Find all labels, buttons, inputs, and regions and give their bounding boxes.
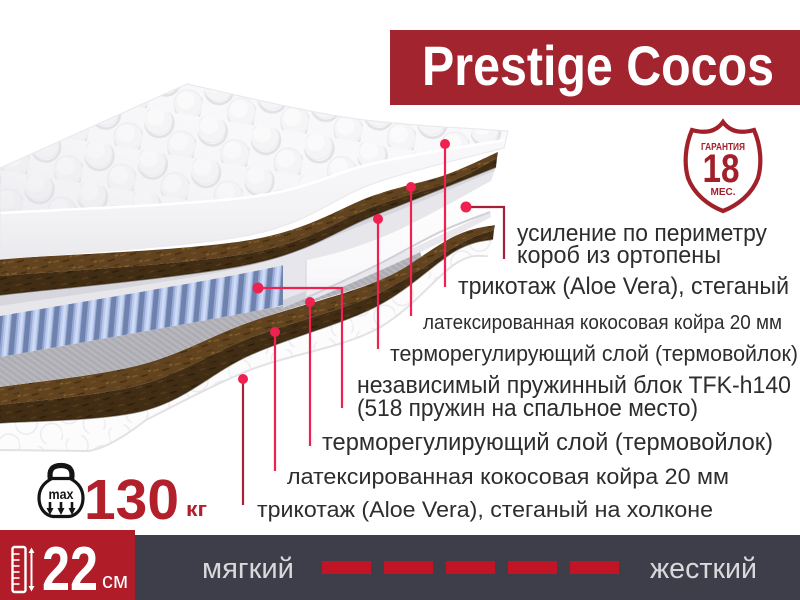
- svg-text:мягкий: мягкий: [202, 553, 294, 585]
- svg-text:трикотаж (Aloe Vera), стеганый: трикотаж (Aloe Vera), стеганый: [458, 273, 789, 300]
- svg-text:жесткий: жесткий: [650, 553, 757, 585]
- svg-text:МЕС.: МЕС.: [711, 186, 736, 198]
- svg-text:130: 130: [84, 468, 179, 532]
- svg-text:латексированная кокосовая койр: латексированная кокосовая койра 20 мм: [287, 464, 729, 489]
- svg-text:трикотаж (Aloe Vera), стеганый: трикотаж (Aloe Vera), стеганый на холкон…: [257, 497, 713, 522]
- svg-text:max: max: [49, 486, 74, 502]
- svg-text:см: см: [102, 568, 128, 593]
- svg-text:(518 пружин на спальное место): (518 пружин на спальное место): [357, 395, 698, 422]
- svg-text:терморегулирующий слой (термов: терморегулирующий слой (термовойлок): [322, 429, 773, 456]
- svg-text:терморегулирующий слой (термов: терморегулирующий слой (термовойлок): [390, 341, 798, 366]
- svg-text:короб из ортопены: короб из ортопены: [517, 242, 721, 269]
- svg-text:латексированная кокосовая койр: латексированная кокосовая койра 20 мм: [423, 312, 782, 334]
- svg-text:кг: кг: [186, 499, 207, 521]
- svg-text:18: 18: [703, 147, 740, 191]
- svg-text:Prestige Cocos: Prestige Cocos: [422, 34, 774, 97]
- svg-text:22: 22: [42, 535, 98, 600]
